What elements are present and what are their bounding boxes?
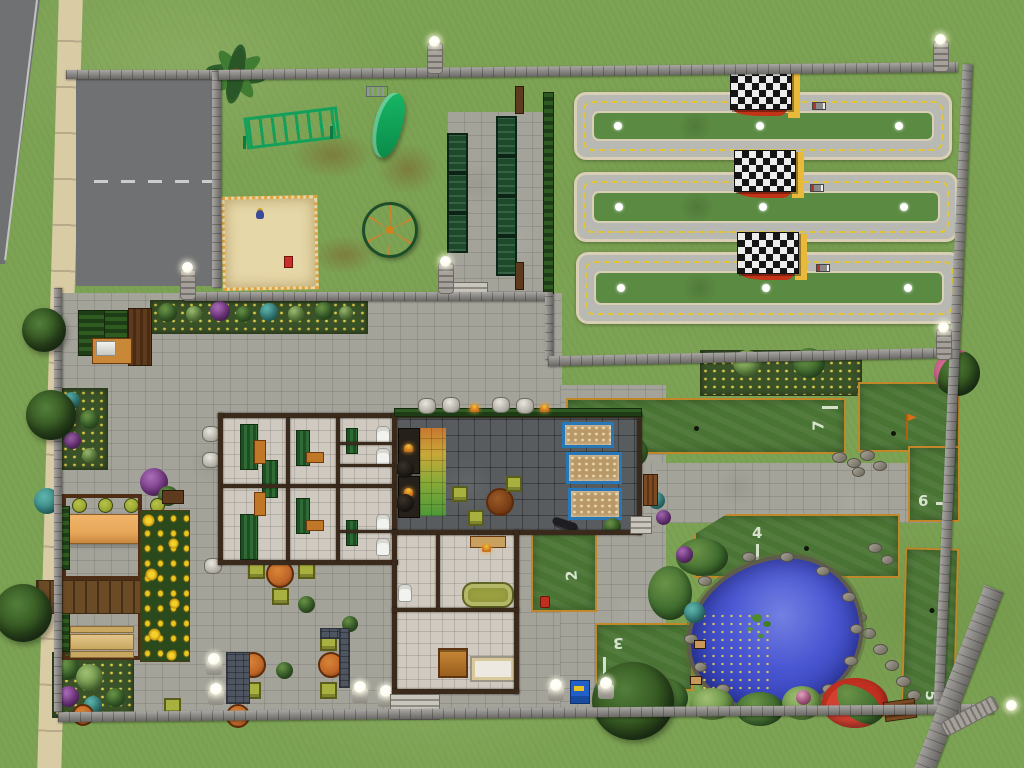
parking-dashed-line (94, 180, 214, 183)
bar-stool[interactable] (124, 498, 139, 513)
kettle-drum[interactable] (396, 460, 414, 478)
hall-steps-east[interactable] (630, 516, 652, 534)
building-wall (222, 484, 394, 488)
slide-ladder (366, 86, 388, 97)
tree (592, 662, 674, 740)
hole-number-3: 3 (613, 635, 623, 650)
track-light (904, 284, 912, 292)
dome-lamp (352, 688, 368, 703)
monkey-bars-leg (243, 136, 246, 149)
stone-wall-west (54, 288, 62, 712)
chair[interactable] (506, 476, 522, 492)
stall-divider (340, 464, 394, 467)
picnic-bench[interactable] (70, 651, 134, 658)
sunflower (168, 538, 179, 549)
massage-table[interactable] (470, 656, 516, 682)
torch-bowl (470, 404, 479, 412)
building-wall (514, 530, 519, 694)
wood-bench[interactable] (254, 492, 266, 516)
wood-post (515, 86, 524, 114)
round-table[interactable] (486, 488, 514, 516)
building-wall (286, 488, 290, 560)
stone-planter (418, 398, 436, 414)
bush (158, 303, 177, 322)
pond-rock (742, 552, 756, 562)
sandbox[interactable] (221, 195, 319, 291)
lamp-orb (182, 262, 193, 273)
track-light (900, 203, 908, 211)
wood-post (515, 262, 524, 290)
toy-bucket (284, 256, 293, 268)
stone-wall (66, 70, 220, 79)
golf-cup (929, 608, 934, 613)
dome-lamp (208, 690, 224, 705)
hole-number-4: 4 (752, 526, 762, 541)
red-berry-bush (822, 678, 888, 728)
stone-wall-inner (545, 292, 553, 360)
track-light (759, 203, 767, 211)
building-wall (336, 418, 340, 484)
sunflower (169, 598, 180, 609)
bush (82, 448, 97, 463)
bathtub[interactable] (462, 582, 514, 608)
lamp-orb (935, 34, 946, 45)
hole-number-7: 7 (812, 420, 827, 430)
torch-bowl (540, 404, 549, 412)
stone-planter (492, 397, 510, 413)
pink-flower-bush (796, 690, 811, 705)
bar-stool[interactable] (98, 498, 113, 513)
bush (106, 688, 125, 707)
bush (315, 302, 333, 320)
tree (22, 308, 66, 352)
lamp-orb (1006, 700, 1017, 711)
sunflower (148, 628, 161, 641)
dome-lamp (598, 684, 614, 699)
purple-flower-bush (676, 546, 693, 563)
hole-number-6: 6 (918, 494, 928, 509)
pond-rock (844, 656, 858, 666)
sunflower (145, 568, 158, 581)
sunflower (166, 650, 177, 661)
drink-cooler-lid (574, 686, 584, 691)
golf-flagstick (906, 414, 908, 440)
privacy-wall (339, 628, 350, 688)
merry-go-round-hub (386, 226, 394, 234)
pond-rock (842, 592, 856, 602)
rc-car[interactable] (816, 264, 830, 272)
changing-stall[interactable] (240, 514, 258, 560)
track-light (615, 203, 623, 211)
golf-cup (694, 426, 699, 431)
shower-stall[interactable] (346, 520, 358, 546)
stepping-stone (868, 543, 882, 553)
picnic-table[interactable] (70, 634, 134, 650)
terrarium-case[interactable] (562, 422, 614, 448)
terrarium-case[interactable] (568, 488, 622, 520)
lamp-orb (938, 322, 949, 333)
track-light (895, 122, 903, 130)
building-wall (392, 530, 397, 694)
pond-pier-post (694, 640, 706, 649)
bush (76, 664, 103, 691)
dome-lamp (206, 660, 222, 675)
park-bench[interactable] (447, 133, 468, 173)
lamp-orb (429, 36, 440, 47)
stepping-stone (896, 676, 911, 687)
bush (288, 306, 304, 322)
game-viewport: 7 6 4 2 3 5 (0, 0, 1024, 768)
building-wall (392, 413, 397, 535)
building-wall (436, 535, 440, 610)
teal-flower-bush (684, 602, 705, 623)
torch-bowl (404, 444, 413, 452)
park-bench[interactable] (447, 213, 468, 253)
toilet[interactable] (376, 538, 390, 556)
tree (26, 390, 76, 440)
stepping-stone (862, 628, 876, 639)
cafe-chair[interactable] (272, 588, 289, 605)
teal-flower-bush (260, 303, 278, 321)
stone-wall-inner (184, 292, 548, 301)
purple-flower-bush (656, 510, 671, 525)
stepping-stone (885, 660, 899, 671)
park-bench[interactable] (496, 236, 517, 276)
pond-rock (816, 566, 830, 576)
dresser[interactable] (438, 648, 468, 678)
picnic-bench[interactable] (70, 626, 134, 633)
pond-rock (850, 624, 863, 634)
pond-pier-post (690, 676, 702, 685)
building-wall (392, 608, 519, 612)
stepping-stone (860, 450, 875, 461)
sunflower-bed (140, 510, 190, 662)
building-wall (286, 418, 290, 484)
bar-canopy (66, 514, 144, 544)
hedge (543, 92, 554, 294)
stepping-stone (832, 452, 847, 463)
bush (339, 306, 353, 320)
lamp (482, 544, 491, 552)
stepping-stone (873, 644, 888, 655)
track-light (614, 122, 622, 130)
rc-car[interactable] (812, 102, 826, 110)
dome-lamp (548, 686, 564, 701)
purple-flower-bush (210, 301, 230, 321)
dance-floor[interactable] (420, 428, 446, 516)
track-light (617, 284, 625, 292)
park-bench[interactable] (447, 173, 468, 213)
hamper[interactable] (306, 520, 324, 531)
building-wall (218, 413, 223, 565)
bush (186, 306, 202, 322)
golf-cup (891, 431, 896, 436)
stone-planter (442, 397, 460, 413)
sunflower (142, 514, 155, 527)
wood-bench[interactable] (254, 440, 266, 464)
monkey-bars-leg (330, 126, 333, 139)
boardwalk-deck (36, 580, 142, 614)
potted-shrub (298, 596, 315, 613)
park-bench[interactable] (496, 156, 517, 196)
lily-pads (752, 614, 762, 622)
building-wall (336, 488, 340, 560)
stall-divider (340, 442, 394, 445)
terrarium-case[interactable] (566, 452, 622, 484)
shower-stall[interactable] (346, 428, 358, 454)
checkered-flag-banner (734, 150, 796, 192)
espresso-machine[interactable] (96, 341, 116, 356)
potted-shrub (276, 662, 293, 679)
park-bench[interactable] (643, 474, 658, 506)
hamper[interactable] (306, 452, 324, 463)
golf-cup (804, 546, 809, 551)
track-light (762, 284, 770, 292)
sandbox-toy (256, 210, 264, 219)
rc-car[interactable] (810, 184, 824, 192)
stepping-stone (852, 467, 865, 477)
stall-divider (340, 530, 394, 533)
start-line (822, 406, 838, 409)
bar-stool[interactable] (72, 498, 87, 513)
stone-wall (212, 70, 221, 288)
stone-wall-north (218, 62, 958, 80)
park-bench[interactable] (496, 116, 517, 156)
pond-rock (698, 576, 712, 586)
privacy-wall (226, 652, 250, 704)
cafe-chair[interactable] (320, 682, 337, 699)
toy-hydrant (540, 596, 550, 608)
pond-rock (694, 662, 707, 672)
chair[interactable] (452, 486, 468, 502)
hole-number-2: 2 (564, 570, 580, 582)
lamp-orb (440, 256, 451, 267)
chair[interactable] (468, 510, 484, 526)
track-light (756, 122, 764, 130)
building-wall (218, 560, 398, 565)
bush (236, 306, 252, 322)
pond-rock (780, 552, 794, 562)
checkered-flag-banner (737, 232, 799, 274)
street-road (0, 0, 46, 264)
bush (80, 410, 99, 429)
stepping-stone (873, 461, 887, 471)
pond-leaf-speckles (700, 612, 772, 692)
stone-planter (516, 398, 534, 414)
pergola-beam (62, 494, 142, 498)
stepping-stone (881, 555, 894, 565)
flower-bed (150, 300, 368, 334)
drink-cooler[interactable] (570, 680, 590, 704)
kettle-drum[interactable] (396, 494, 414, 512)
park-bench[interactable] (496, 196, 517, 236)
toilet[interactable] (398, 584, 412, 602)
bar-counter[interactable] (162, 490, 184, 504)
